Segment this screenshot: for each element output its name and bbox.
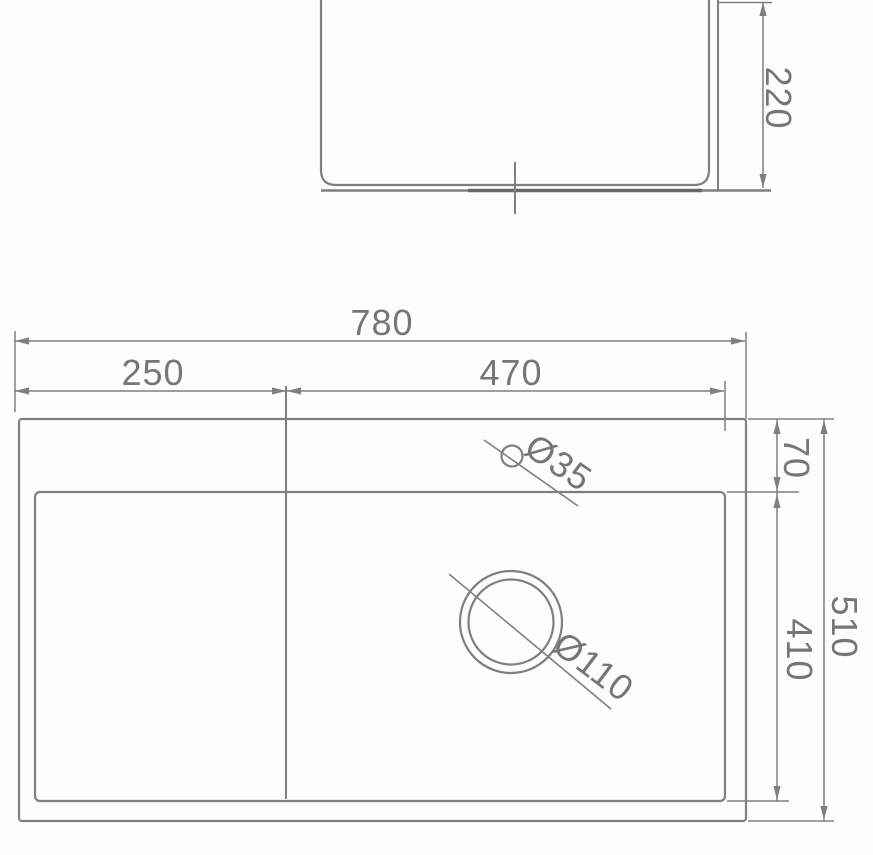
arrow-250-right (272, 387, 286, 394)
arrow-220-bottom (759, 174, 766, 188)
arrow-410-top (773, 494, 780, 508)
plan-outer-rect (19, 419, 746, 821)
side-view-bowl-outline (321, 0, 709, 185)
drain-hole-outer-circle (460, 571, 562, 673)
faucet-hole-diameter-label: Ø35 (518, 426, 600, 500)
arrow-70-bottom (773, 477, 780, 491)
arrow-250-left (15, 387, 29, 394)
linework (15, 0, 834, 821)
drain-hole-inner-circle (469, 580, 554, 665)
drain-hole-diameter-label: Ø110 (546, 623, 642, 710)
plan-overall-depth-label: 510 (824, 595, 865, 658)
arrow-220-top (759, 2, 766, 16)
dimension-labels: 220 780 250 470 70 410 510 Ø35 Ø110 (121, 66, 865, 709)
arrow-470-right (710, 387, 724, 394)
arrow-780-left (15, 337, 29, 344)
arrow-780-right (731, 337, 745, 344)
plan-bowl-width-label: 470 (479, 352, 542, 393)
side-view-depth-label: 220 (758, 66, 799, 129)
arrow-510-top (820, 420, 827, 434)
drawing-svg: 220 780 250 470 70 410 510 Ø35 Ø110 (0, 0, 873, 855)
sink-technical-drawing: 220 780 250 470 70 410 510 Ø35 Ø110 (0, 0, 873, 855)
plan-left-section-width-label: 250 (121, 352, 184, 393)
plan-bowl-depth-label: 410 (779, 618, 820, 681)
arrow-470-left (287, 387, 301, 394)
plan-bowl-inner-rect (35, 492, 725, 801)
plan-overall-width-label: 780 (350, 302, 413, 343)
arrow-410-bottom (773, 786, 780, 800)
arrow-70-top (773, 420, 780, 434)
plan-rim-depth-label: 70 (776, 437, 817, 479)
arrow-510-bottom (820, 806, 827, 820)
arrowheads (15, 2, 828, 820)
